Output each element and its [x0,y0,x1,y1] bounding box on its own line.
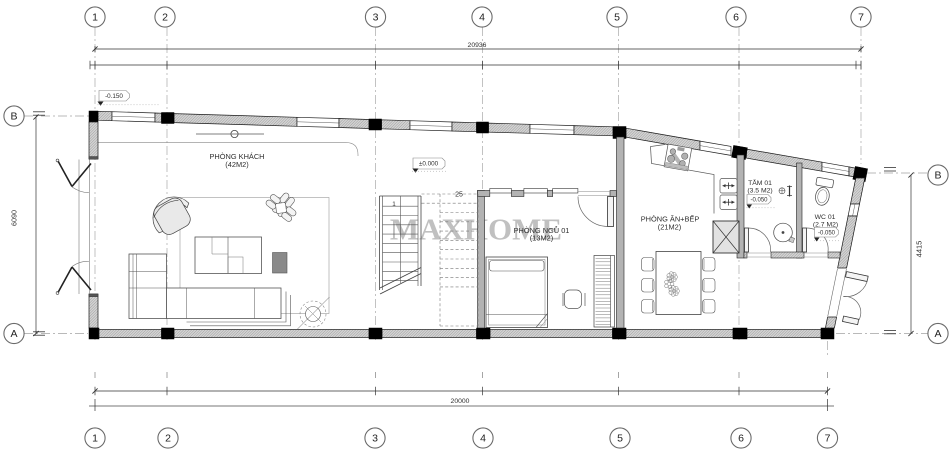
svg-text:3: 3 [372,433,378,445]
svg-text:±0.000: ±0.000 [419,160,439,167]
svg-text:4: 4 [480,433,486,445]
svg-text:WC 01: WC 01 [815,214,836,221]
svg-text:25: 25 [455,192,463,199]
svg-text:4415: 4415 [915,241,924,258]
svg-text:-0.050: -0.050 [818,230,836,236]
svg-text:3: 3 [373,12,379,24]
svg-text:1: 1 [92,433,98,445]
svg-text:6: 6 [738,433,744,445]
svg-text:6: 6 [733,12,739,24]
svg-text:7: 7 [858,12,864,24]
svg-text:B: B [934,170,941,182]
svg-text:TẮM 01: TẮM 01 [748,178,772,187]
svg-text:B: B [10,111,17,123]
svg-text:(42M2): (42M2) [225,160,248,169]
svg-text:5: 5 [614,12,620,24]
svg-text:(13M2): (13M2) [530,234,553,243]
svg-text:5: 5 [617,433,623,445]
svg-text:4: 4 [479,12,485,24]
svg-text:-0.050: -0.050 [750,197,768,203]
svg-text:20936: 20936 [468,42,487,49]
svg-text:(21M2): (21M2) [658,223,681,232]
svg-text:6090: 6090 [10,210,19,226]
svg-text:2: 2 [165,433,171,445]
svg-text:20000: 20000 [451,398,470,405]
svg-text:-0.150: -0.150 [105,93,123,100]
svg-text:A: A [934,328,941,340]
svg-text:1: 1 [92,12,98,24]
svg-text:1: 1 [392,201,396,208]
svg-text:2: 2 [162,12,168,24]
svg-text:7: 7 [825,433,831,445]
svg-text:(3.5 M2): (3.5 M2) [747,188,772,195]
svg-text:A: A [10,328,17,340]
